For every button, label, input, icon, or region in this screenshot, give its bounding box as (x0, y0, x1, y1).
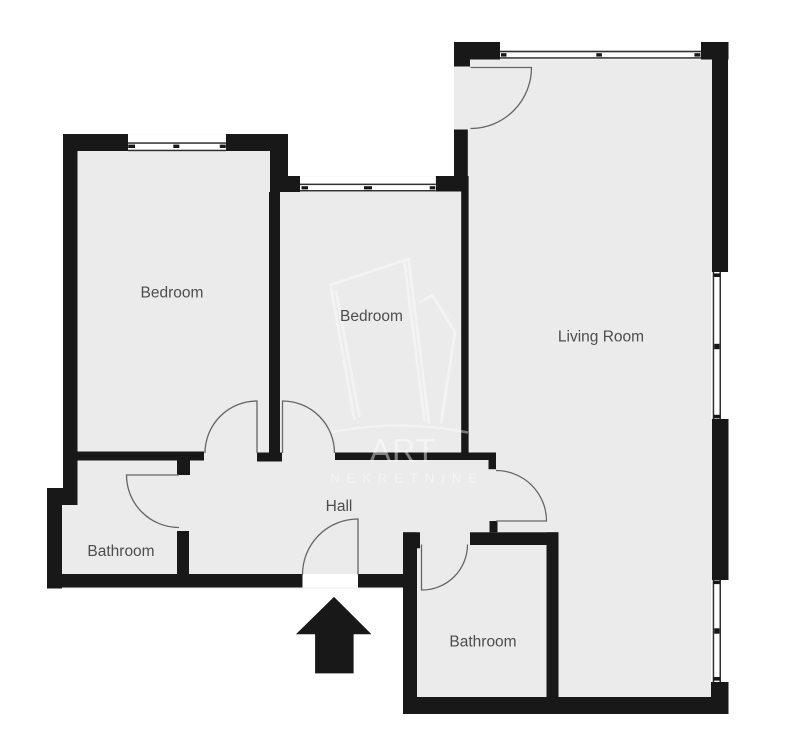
svg-text:Hall: Hall (326, 498, 353, 515)
svg-text:Bathroom: Bathroom (87, 543, 154, 560)
svg-text:Living Room: Living Room (558, 329, 644, 346)
svg-text:Bedroom: Bedroom (141, 285, 204, 302)
svg-text:ART: ART (370, 433, 436, 469)
svg-text:Bedroom: Bedroom (340, 308, 403, 325)
svg-text:NEKRETNINE: NEKRETNINE (330, 471, 484, 486)
svg-text:Bathroom: Bathroom (449, 634, 516, 651)
